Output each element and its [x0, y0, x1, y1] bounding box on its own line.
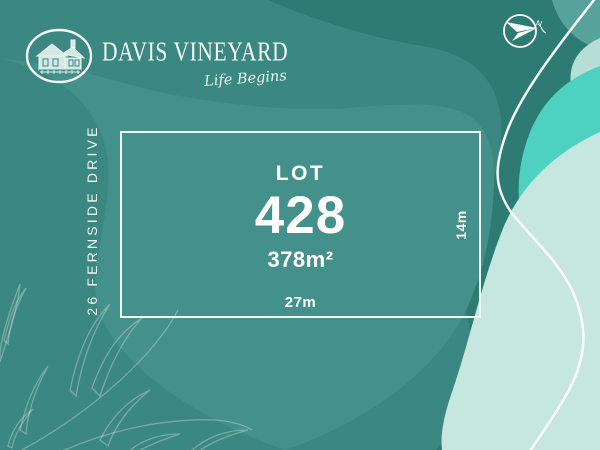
brand-name: DAVIS VINEYARD — [102, 36, 288, 68]
lot-info-block: LOT 428 378m² — [255, 163, 346, 271]
street-label: 26 FERNSIDE DRIVE — [84, 124, 100, 315]
brand-logo: DAVIS VINEYARD Life Begins — [22, 26, 288, 86]
lot-boundary-box: LOT 428 378m² 27m 14m — [120, 131, 481, 318]
lot-area: 378m² — [267, 248, 333, 272]
lot-flyer: DAVIS VINEYARD Life Begins 26 FERNSIDE D… — [0, 0, 600, 450]
lot-label: LOT — [276, 163, 326, 184]
brand-text-block: DAVIS VINEYARD Life Begins — [102, 36, 288, 84]
lot-number: 428 — [255, 187, 346, 244]
lot-frontage-label: 27m — [122, 294, 479, 311]
lot-depth-label: 14m — [453, 210, 469, 240]
house-logo-icon — [22, 26, 96, 86]
